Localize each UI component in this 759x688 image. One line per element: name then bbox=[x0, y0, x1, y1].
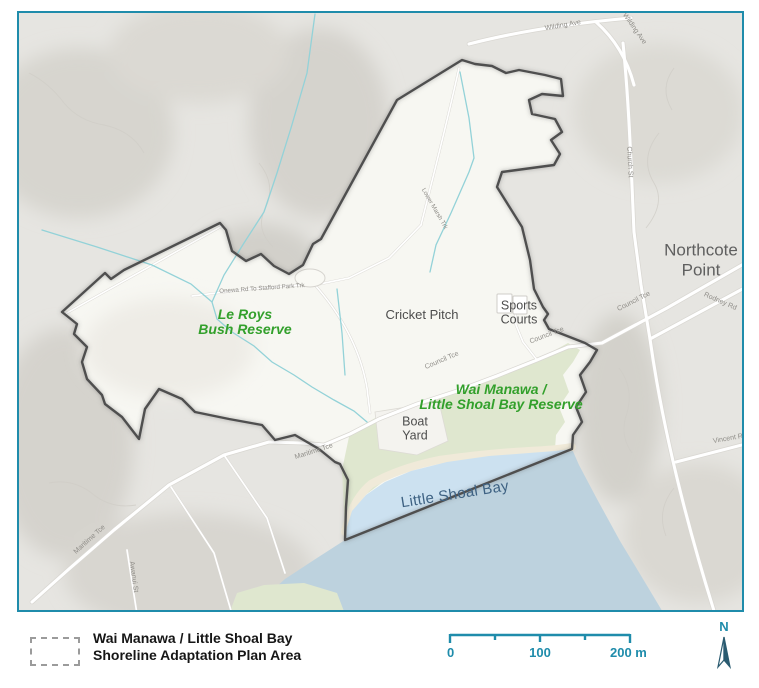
sports-court bbox=[497, 294, 512, 313]
north-arrow-icon bbox=[714, 635, 734, 671]
scale-100-label: 100 bbox=[529, 645, 551, 660]
scale-bar: 0 100 200 m bbox=[445, 629, 657, 669]
scale-0-label: 0 bbox=[447, 645, 454, 660]
legend-plan-area-swatch bbox=[30, 637, 80, 666]
cricket-pitch-oval bbox=[295, 269, 325, 287]
sports-court bbox=[513, 296, 527, 314]
scale-bar-line bbox=[445, 629, 657, 645]
map-figure: Le Roys Bush Reserve Wai Manawa / Little… bbox=[0, 0, 759, 688]
scale-200-label: 200 m bbox=[610, 645, 647, 660]
legend-line-1: Wai Manawa / Little Shoal Bay bbox=[93, 630, 301, 647]
north-label: N bbox=[705, 620, 743, 634]
legend-line-2: Shoreline Adaptation Plan Area bbox=[93, 647, 301, 664]
legend-text: Wai Manawa / Little Shoal Bay Shoreline … bbox=[93, 630, 301, 664]
map-frame: Le Roys Bush Reserve Wai Manawa / Little… bbox=[17, 11, 744, 612]
map-canvas bbox=[19, 13, 742, 610]
north-arrow: N bbox=[705, 620, 743, 678]
